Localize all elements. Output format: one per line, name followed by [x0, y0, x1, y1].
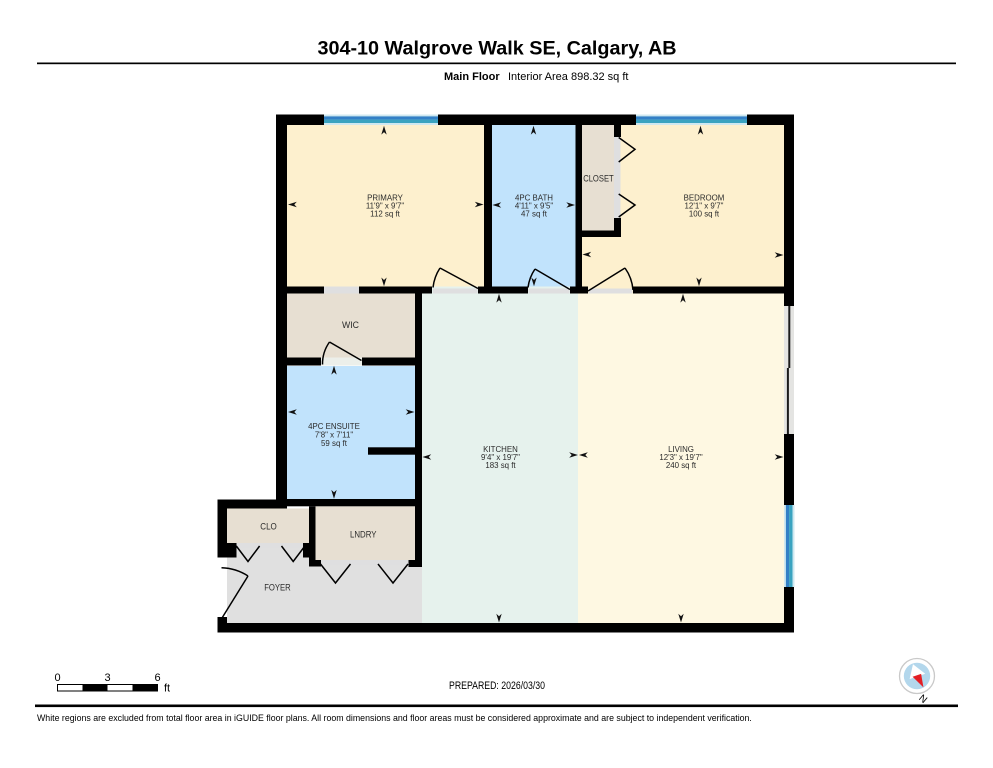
svg-text:FOYER: FOYER — [264, 583, 291, 593]
svg-text:112 sq ft: 112 sq ft — [370, 210, 400, 219]
svg-text:CLOSET: CLOSET — [583, 173, 614, 183]
svg-text:240 sq ft: 240 sq ft — [666, 461, 697, 470]
svg-text:White regions are excluded fro: White regions are excluded from total fl… — [37, 713, 752, 723]
svg-text:CLO: CLO — [260, 522, 277, 532]
svg-text:LNDRY: LNDRY — [350, 529, 377, 539]
svg-text:6: 6 — [154, 672, 160, 684]
svg-text:3: 3 — [104, 672, 110, 684]
svg-text:Interior Area 898.32 sq ft: Interior Area 898.32 sq ft — [508, 71, 628, 83]
svg-text:ft: ft — [164, 683, 170, 695]
svg-text:59 sq ft: 59 sq ft — [321, 439, 348, 448]
svg-text:0: 0 — [54, 672, 60, 684]
svg-text:WIC: WIC — [342, 320, 359, 330]
svg-text:PREPARED: 2026/03/30: PREPARED: 2026/03/30 — [449, 680, 545, 692]
svg-text:183 sq ft: 183 sq ft — [485, 461, 516, 470]
svg-text:Main Floor: Main Floor — [444, 71, 500, 83]
svg-text:304-10 Walgrove Walk SE, Calga: 304-10 Walgrove Walk SE, Calgary, AB — [317, 38, 676, 60]
svg-text:47 sq ft: 47 sq ft — [521, 210, 548, 219]
svg-text:100 sq ft: 100 sq ft — [689, 210, 720, 219]
